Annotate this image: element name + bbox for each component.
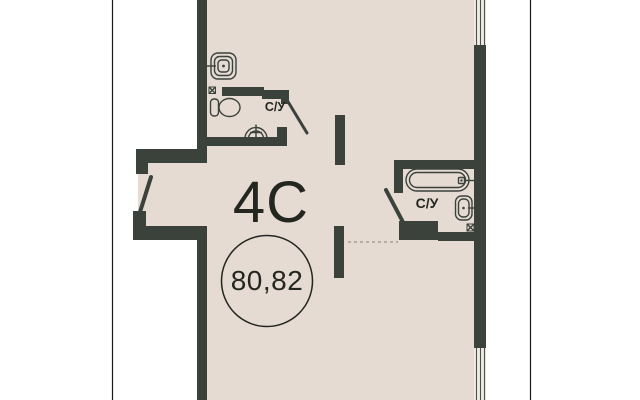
window-top [474, 0, 486, 45]
right-wall [474, 45, 486, 348]
vent-shaft-icon [209, 87, 216, 94]
window-bottom [474, 348, 486, 400]
left-wall-bottom [197, 226, 207, 400]
floorplan-svg: С/У С/У 4С 80,82 [0, 0, 640, 400]
bathroom2-top-wall [394, 160, 474, 169]
alcove-bottom-wall [133, 226, 207, 240]
unit-type-label: 4С [233, 170, 309, 235]
bathroom1-label: С/У [265, 100, 286, 114]
bathroom1-top-wall [222, 87, 264, 96]
bathroom2-left-wall [394, 160, 403, 193]
partition-wall-lower [334, 226, 344, 278]
bathroom1-bottom-stub [277, 127, 287, 139]
area-value-label: 80,82 [231, 265, 304, 296]
floorplan-page: С/У С/У 4С 80,82 [0, 0, 640, 400]
bathroom2-bottom-wall [438, 232, 474, 241]
entrance-alcove-floor [138, 163, 207, 226]
bathroom1-top-wall-ext [262, 90, 284, 99]
bathroom2-label: С/У [416, 195, 439, 211]
bathroom1-bottom-wall [207, 137, 287, 146]
left-wall-top [197, 0, 207, 163]
vent-shaft-icon [467, 224, 474, 231]
partition-wall-upper [335, 115, 345, 165]
alcove-left-stub-top [136, 149, 148, 174]
